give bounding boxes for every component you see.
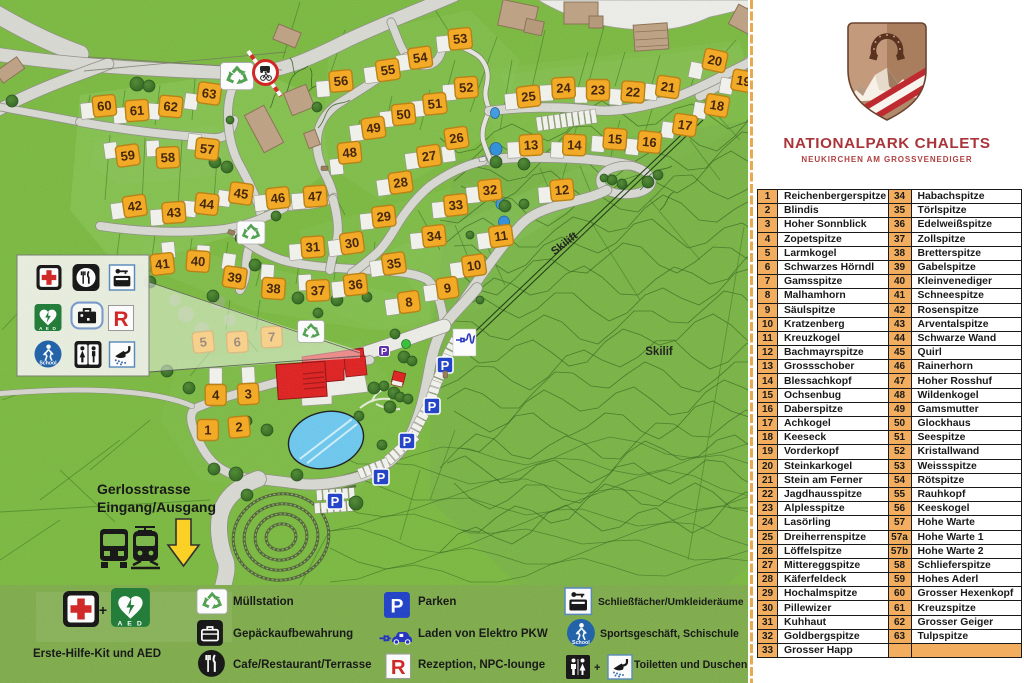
svg-text:NEUKIRCHEN AM GROSSVENEDIGER: NEUKIRCHEN AM GROSSVENEDIGER	[801, 155, 972, 164]
svg-text:NATIONALPARK CHALETS: NATIONALPARK CHALETS	[783, 135, 990, 152]
